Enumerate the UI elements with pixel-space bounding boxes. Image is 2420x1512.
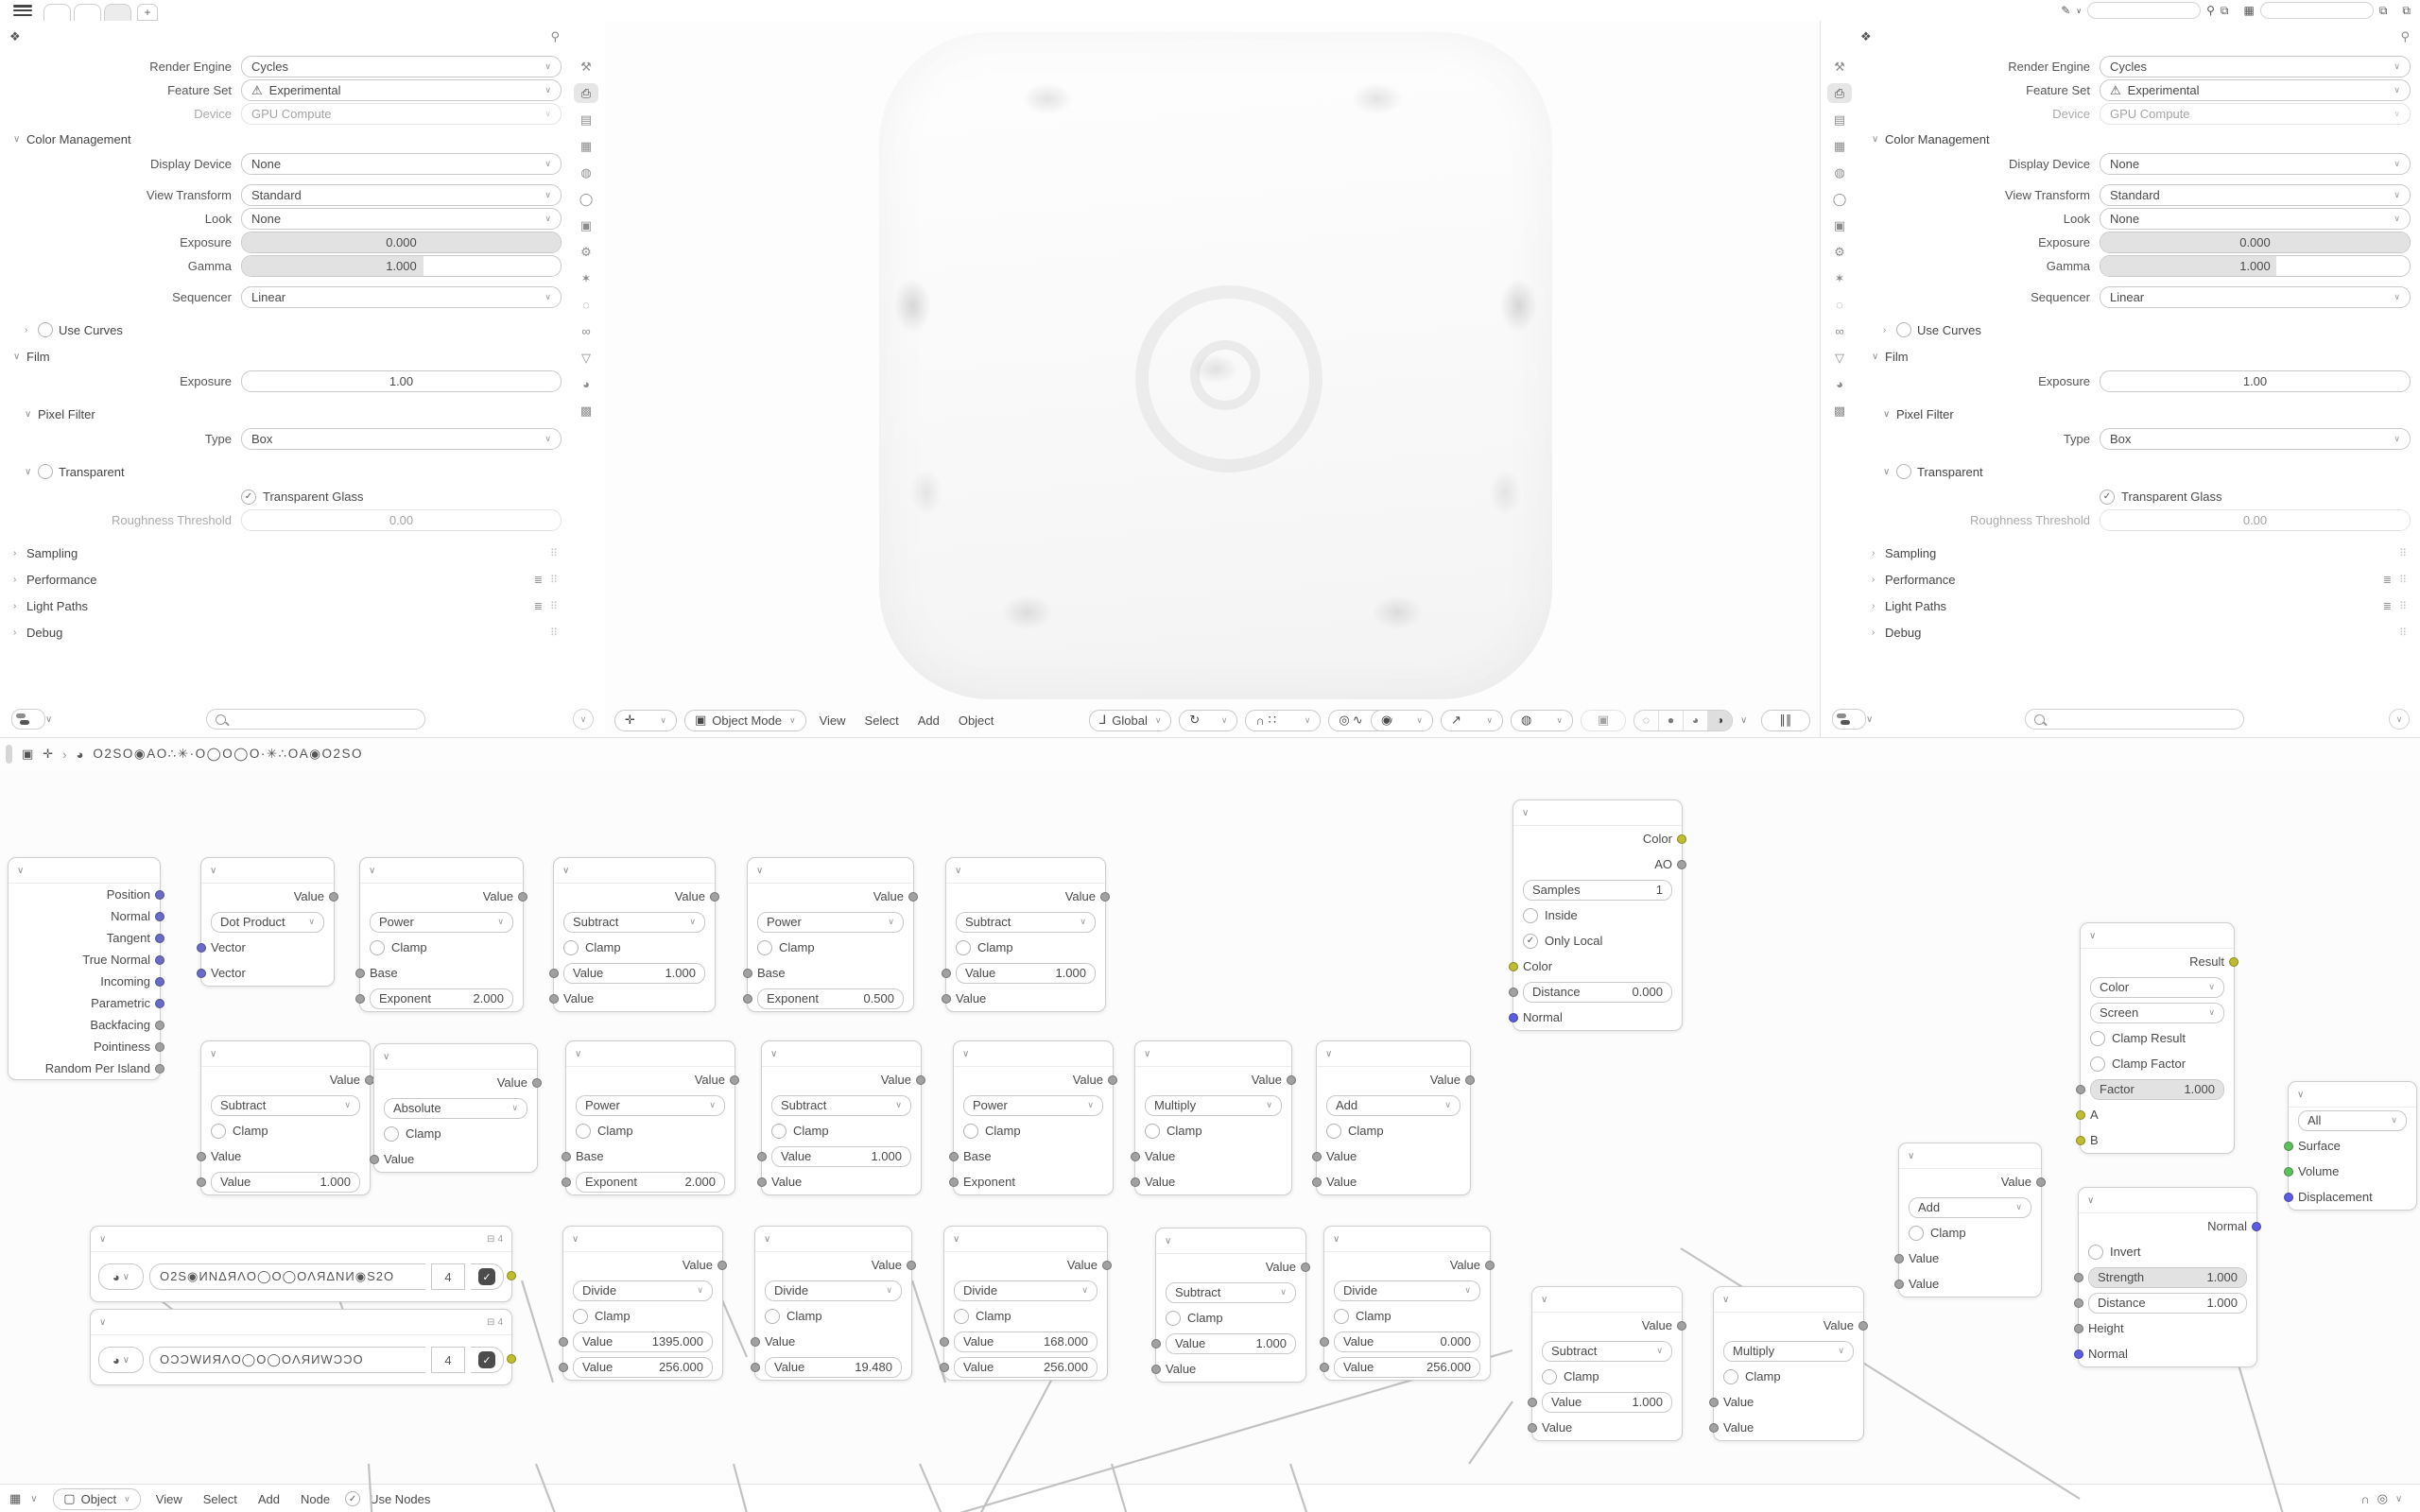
preset-list-icon[interactable]: ≣ (534, 600, 543, 612)
socket-value[interactable] (743, 994, 752, 1004)
overlays-dropdown[interactable]: ◍∨ (1511, 710, 1573, 731)
section-right-icons[interactable]: ⠿ (550, 627, 558, 639)
socket-color[interactable] (1509, 962, 1518, 971)
section-right-icons[interactable]: ≣⠿ (2383, 600, 2407, 612)
properties-tab-particles-icon[interactable]: ✶ (1827, 268, 1852, 288)
socket-value[interactable] (1100, 892, 1110, 902)
node-collapse-chevron[interactable]: ∨ (1541, 1295, 1547, 1305)
socket-color[interactable] (1677, 834, 1686, 844)
node-collapse-chevron[interactable]: ∨ (1522, 808, 1529, 818)
device-dropdown[interactable]: GPU Compute∨ (241, 103, 562, 125)
menu-object[interactable]: Object (953, 713, 1000, 728)
operation-dropdown[interactable]: Power∨ (757, 912, 904, 933)
new-view-layer-icon[interactable]: ⧉ (2402, 4, 2411, 18)
socket-vector[interactable] (197, 969, 206, 978)
node-node-group-1[interactable]: ∨⊟4◕∨O2S◉ИNΔЯΛO◯O◯OΛЯΔNИ◉S2O4✓ (90, 1226, 512, 1302)
node-collapse-chevron[interactable]: ∨ (575, 1049, 581, 1059)
drag-grip-icon[interactable]: ⠿ (550, 627, 558, 639)
socket-vector[interactable] (155, 934, 164, 943)
node-math-multiply-1[interactable]: ∨ValueMultiply∨ClampValueValue (1134, 1040, 1292, 1195)
properties-tab-world-icon[interactable]: ◯ (574, 189, 598, 209)
operation-dropdown[interactable]: Subtract∨ (563, 912, 705, 933)
node-collapse-chevron[interactable]: ∨ (562, 866, 569, 876)
value-value-field[interactable]: Value1.000 (771, 1146, 911, 1167)
workspace-tab-3[interactable] (104, 4, 131, 22)
node-math-subtract-2[interactable]: ∨ValueSubtract∨ClampValue1.000Value (945, 857, 1106, 1012)
value-value-field[interactable]: Value1.000 (956, 963, 1096, 984)
node-collapse-chevron[interactable]: ∨ (210, 1049, 216, 1059)
socket-value[interactable] (949, 1177, 959, 1187)
properties-tab-output-icon[interactable]: ▤ (1827, 110, 1852, 129)
socket-value[interactable] (730, 1075, 739, 1085)
socket-value[interactable] (1465, 1075, 1475, 1085)
socket-normal[interactable] (2074, 1349, 2083, 1359)
clamp-checkbox[interactable] (1166, 1311, 1181, 1326)
socket-vector[interactable] (155, 912, 164, 921)
transform-orientation-dropdown[interactable]: ⅃Global∨ (1089, 710, 1171, 731)
socket-value[interactable] (2074, 1273, 2083, 1282)
drag-grip-icon[interactable]: ⠿ (2399, 627, 2407, 639)
use-curves-checkbox[interactable] (1896, 322, 1911, 337)
header-grip[interactable] (6, 745, 12, 764)
node-collapse-chevron[interactable]: ∨ (1908, 1151, 1914, 1161)
shading-solid-icon[interactable]: ● (1658, 711, 1683, 730)
xray-toggle[interactable]: ▣ (1581, 710, 1626, 731)
operation-dropdown[interactable]: Divide∨ (765, 1280, 902, 1301)
node-collapse-chevron[interactable]: ∨ (17, 866, 24, 876)
socket-value[interactable] (155, 1064, 164, 1074)
value-value-field[interactable]: Value19.480 (765, 1357, 902, 1378)
film-exposure-field[interactable]: 1.00 (241, 370, 562, 392)
chevron-down-icon[interactable]: ∨ (2395, 1494, 2409, 1504)
properties-tab-tool-icon[interactable]: ⚒ (574, 57, 598, 77)
socket-normal[interactable] (2252, 1222, 2261, 1231)
pixel-filter-type-dropdown[interactable]: Box∨ (2100, 428, 2411, 450)
node-math-subtract-4[interactable]: ∨ValueSubtract∨ClampValue1.000Value (761, 1040, 922, 1195)
gamma-slider[interactable]: 1.000 (241, 255, 562, 277)
section-use-curves[interactable]: ›Use Curves (1858, 317, 2416, 343)
options-button[interactable]: ∨ (2389, 709, 2410, 730)
node-collapse-chevron[interactable]: ∨ (2297, 1090, 2304, 1100)
shader-context-dropdown[interactable]: ▢Object∨ (53, 1488, 140, 1510)
clamp-checkbox[interactable] (384, 1126, 399, 1142)
socket-value[interactable] (1131, 1152, 1140, 1161)
socket-value[interactable] (1528, 1398, 1537, 1407)
copy-icon[interactable]: ⧉ (2221, 4, 2229, 18)
operation-dropdown[interactable]: Add∨ (1326, 1095, 1461, 1116)
section-light-paths[interactable]: ›Light Paths≣⠿ (1858, 593, 2416, 619)
toggle-columns-icon[interactable] (11, 709, 45, 730)
invert-checkbox[interactable] (2088, 1245, 2103, 1260)
section-right-icons[interactable]: ⠿ (2399, 627, 2407, 639)
device-dropdown[interactable]: GPU Compute∨ (2100, 103, 2411, 125)
section-pixel-filter[interactable]: ∨Pixel Filter (0, 401, 567, 427)
section-transparent[interactable]: ∨Transparent (0, 458, 567, 485)
clamp-checkbox[interactable] (1145, 1124, 1160, 1139)
film-exposure-field[interactable]: 1.00 (2100, 370, 2411, 392)
socket-value[interactable] (916, 1075, 925, 1085)
copy-icon[interactable]: ⧉ (2379, 4, 2388, 18)
socket-vector[interactable] (155, 955, 164, 965)
operation-dropdown[interactable]: Power∨ (370, 912, 513, 933)
pause-render-button[interactable]: ∥∥ (1761, 710, 1810, 731)
properties-tab-particles-icon[interactable]: ✶ (574, 268, 598, 288)
mode-dropdown[interactable]: ▣Object Mode∨ (684, 710, 806, 731)
operation-dropdown[interactable]: Screen∨ (2090, 1003, 2224, 1023)
socket-value[interactable] (710, 892, 719, 902)
section-right-icons[interactable]: ≣⠿ (534, 574, 558, 586)
display-device-dropdown[interactable]: None∨ (241, 153, 562, 175)
drag-grip-icon[interactable]: ⠿ (550, 547, 558, 559)
socket-color[interactable] (507, 1271, 516, 1280)
menu-select[interactable]: Select (859, 713, 905, 728)
socket-value[interactable] (549, 994, 559, 1004)
drag-grip-icon[interactable]: ⠿ (2399, 600, 2407, 612)
socket-value[interactable] (1485, 1261, 1495, 1270)
operation-dropdown[interactable]: Subtract∨ (211, 1095, 360, 1116)
menu-add[interactable]: Add (912, 713, 945, 728)
section-film[interactable]: ∨Film (0, 343, 567, 369)
properties-editor-icon[interactable]: ❖ (9, 29, 21, 44)
node-collapse-chevron[interactable]: ∨ (1722, 1295, 1729, 1305)
properties-tab-modifiers-icon[interactable]: ⚙ (574, 242, 598, 262)
options-button[interactable]: ∨ (573, 709, 594, 730)
section-debug[interactable]: ›Debug⠿ (0, 619, 567, 645)
properties-tab-tool-icon[interactable]: ⚒ (1827, 57, 1852, 77)
socket-value[interactable] (1528, 1423, 1537, 1433)
socket-value[interactable] (1312, 1177, 1322, 1187)
preset-list-icon[interactable]: ≣ (2383, 574, 2392, 586)
properties-tab-texture-icon[interactable]: ▩ (574, 401, 598, 421)
socket-value[interactable] (549, 969, 559, 978)
socket-value[interactable] (942, 994, 951, 1004)
clamp-checkbox[interactable] (1334, 1309, 1349, 1324)
drag-grip-icon[interactable]: ⠿ (2399, 574, 2407, 586)
clamp-checkbox[interactable] (563, 940, 579, 955)
properties-editor-icon[interactable]: ❖ (1860, 29, 1872, 44)
clamp-checkbox[interactable] (771, 1124, 786, 1139)
socket-shader[interactable] (2284, 1167, 2293, 1177)
properties-tab-constraints-icon[interactable]: ∞ (1827, 321, 1852, 341)
socket-value[interactable] (1677, 1321, 1686, 1331)
magnet-icon[interactable]: ∩ (2360, 1492, 2369, 1506)
factor-value-field[interactable]: Factor1.000 (2090, 1079, 2224, 1100)
operation-dropdown[interactable]: Absolute∨ (384, 1098, 527, 1119)
node-bump[interactable]: ∨NormalInvertStrength1.000Distance1.000H… (2078, 1187, 2257, 1367)
socket-value[interactable] (757, 1177, 767, 1187)
fake-user-shield-button[interactable]: ✓ (471, 1347, 504, 1373)
properties-tab-modifiers-icon[interactable]: ⚙ (1827, 242, 1852, 262)
section-sampling[interactable]: ›Sampling⠿ (0, 540, 567, 566)
operation-dropdown[interactable]: Subtract∨ (956, 912, 1096, 933)
node-math-power-3[interactable]: ∨ValuePower∨ClampBaseExponent2.000 (565, 1040, 735, 1195)
menu-select[interactable]: Select (198, 1492, 243, 1506)
roughness-threshold-field[interactable]: 0.00 (241, 509, 562, 531)
socket-value[interactable] (1320, 1337, 1329, 1347)
node-collapse-chevron[interactable]: ∨ (764, 1234, 770, 1245)
clamp-checkbox[interactable] (1723, 1369, 1738, 1384)
socket-value[interactable] (757, 1152, 767, 1161)
select-box-icon[interactable]: ▣ (22, 747, 33, 762)
value-value-field[interactable]: Value1.000 (1542, 1392, 1672, 1413)
clamp-checkbox[interactable] (1326, 1124, 1341, 1139)
node-math-absolute[interactable]: ∨ValueAbsolute∨ClampValue (373, 1043, 538, 1173)
clamp-factor-checkbox[interactable] (2090, 1057, 2105, 1072)
chevron-down-icon[interactable]: ∨ (2076, 7, 2082, 15)
socket-value[interactable] (1709, 1398, 1719, 1407)
socket-value[interactable] (562, 1177, 571, 1187)
socket-value[interactable] (940, 1363, 949, 1372)
value-value-field[interactable]: Value1.000 (1166, 1333, 1296, 1354)
node-collapse-chevron[interactable]: ∨ (1165, 1236, 1171, 1246)
node-math-subtract-5[interactable]: ∨ValueSubtract∨ClampValue1.000Value (1155, 1228, 1306, 1383)
section-color-management[interactable]: ∨Color Management (0, 126, 567, 152)
node-math-power-1[interactable]: ∨ValuePower∨ClampBaseExponent2.000 (359, 857, 524, 1012)
datablock-name-field[interactable]: O2S◉ИNΔЯΛO◯O◯OΛЯΔNИ◉S2O (149, 1263, 425, 1290)
exponent-value-field[interactable]: Exponent0.500 (757, 988, 904, 1009)
node-math-subtract-3[interactable]: ∨ValueSubtract∨ClampValueValue1.000 (200, 1040, 371, 1195)
clamp-checkbox[interactable] (956, 940, 971, 955)
properties-tab-scene-icon[interactable]: ◍ (1827, 163, 1852, 182)
editor-type-button[interactable]: ✛∨ (614, 710, 677, 731)
properties-tab-material-icon[interactable]: ◕ (574, 374, 598, 394)
socket-value[interactable] (355, 994, 365, 1004)
properties-tab-view-layer-icon[interactable]: ▦ (574, 136, 598, 156)
shading-rendered-icon[interactable]: ◑ (1707, 711, 1732, 730)
node-math-subtract-6[interactable]: ∨ValueSubtract∨ClampValue1.000Value (1531, 1286, 1683, 1441)
clamp-checkbox[interactable] (765, 1309, 780, 1324)
properties-tab-constraints-icon[interactable]: ∞ (574, 321, 598, 341)
section-pixel-filter[interactable]: ∨Pixel Filter (1858, 401, 2416, 427)
shading-wireframe-icon[interactable]: ◌ (1634, 711, 1658, 730)
exponent-value-field[interactable]: Exponent2.000 (576, 1172, 725, 1193)
value-value-field[interactable]: Value168.000 (954, 1332, 1098, 1352)
socket-value[interactable] (2076, 1085, 2085, 1094)
strength-value-field[interactable]: Strength1.000 (2088, 1267, 2247, 1288)
clamp-checkbox[interactable] (576, 1124, 591, 1139)
snap-target-dropdown[interactable]: ↻∨ (1179, 710, 1237, 731)
node-math-add-2[interactable]: ∨ValueAdd∨ClampValueValue (1898, 1143, 2042, 1297)
node-collapse-chevron[interactable]: ∨ (1144, 1049, 1150, 1059)
socket-value[interactable] (1151, 1339, 1161, 1349)
socket-vector[interactable] (155, 999, 164, 1008)
properties-tab-material-icon[interactable]: ◕ (1827, 374, 1852, 394)
distance-value-field[interactable]: Distance0.000 (1523, 982, 1672, 1003)
distance-value-field[interactable]: Distance1.000 (2088, 1293, 2247, 1314)
section-color-management[interactable]: ∨Color Management (1858, 126, 2416, 152)
menu-view[interactable]: View (150, 1492, 188, 1506)
node-node-group-2[interactable]: ∨⊟4◕∨OƆƆWИЯΛO◯O◯OΛЯИWƆƆO4✓ (90, 1309, 512, 1385)
socket-normal[interactable] (1509, 1013, 1518, 1022)
view-transform-dropdown[interactable]: Standard∨ (2100, 184, 2411, 206)
socket-value[interactable] (907, 1261, 916, 1270)
properties-tab-output-icon[interactable]: ▤ (574, 110, 598, 129)
socket-value[interactable] (717, 1261, 727, 1270)
properties-tab-object-icon[interactable]: ▣ (574, 215, 598, 235)
node-collapse-chevron[interactable]: ∨ (383, 1052, 389, 1062)
clamp-checkbox[interactable] (757, 940, 772, 955)
hamburger-menu-icon[interactable] (13, 5, 32, 16)
pin-icon[interactable]: ⚲ (2206, 4, 2215, 17)
node-math-divide-4[interactable]: ∨ValueDivide∨ClampValue0.000Value256.000 (1323, 1226, 1491, 1381)
socket-value[interactable] (155, 1021, 164, 1030)
node-collapse-chevron[interactable]: ∨ (572, 1234, 579, 1245)
node-collapse-chevron[interactable]: ∨ (962, 1049, 969, 1059)
feature-set-dropdown[interactable]: ⚠Experimental∨ (241, 79, 562, 101)
properties-search-input[interactable] (2025, 709, 2244, 730)
section-debug[interactable]: ›Debug⠿ (1858, 619, 2416, 645)
exposure-slider[interactable]: 0.000 (2100, 232, 2411, 253)
operation-dropdown[interactable]: All∨ (2298, 1110, 2407, 1131)
socket-value[interactable] (942, 969, 951, 978)
socket-value[interactable] (2074, 1324, 2083, 1333)
chevron-down-icon[interactable]: ∨ (45, 714, 59, 725)
operation-dropdown[interactable]: Divide∨ (1334, 1280, 1480, 1301)
socket-color[interactable] (2229, 957, 2238, 967)
render-engine-dropdown[interactable]: Cycles∨ (2100, 56, 2411, 77)
preset-list-icon[interactable]: ≣ (534, 574, 543, 586)
look-dropdown[interactable]: None∨ (241, 208, 562, 230)
socket-value[interactable] (355, 969, 365, 978)
socket-value[interactable] (532, 1078, 542, 1088)
toggle-columns-icon[interactable] (1832, 709, 1866, 730)
properties-tab-object-icon[interactable]: ▣ (1827, 215, 1852, 235)
node-collapse-chevron[interactable]: ∨ (1325, 1049, 1332, 1059)
clamp-checkbox[interactable] (370, 940, 385, 955)
node-collapse-chevron[interactable]: ∨ (2087, 1195, 2094, 1206)
pin-icon[interactable]: ⚲ (550, 29, 560, 44)
menu-node[interactable]: Node (295, 1492, 336, 1506)
node-math-divide-2[interactable]: ∨ValueDivide∨ClampValueValue19.480 (754, 1226, 912, 1381)
drag-grip-icon[interactable]: ⠿ (2399, 547, 2407, 559)
only-local-checkbox[interactable]: ✓ (1523, 934, 1538, 949)
socket-value[interactable] (2074, 1298, 2083, 1308)
move-tool-icon[interactable]: ✛ (43, 747, 53, 762)
socket-value[interactable] (1312, 1152, 1322, 1161)
sequencer-dropdown[interactable]: Linear∨ (241, 286, 562, 308)
preset-list-icon[interactable]: ≣ (2383, 600, 2392, 612)
socket-value[interactable] (1509, 988, 1518, 997)
node-math-power-2[interactable]: ∨ValuePower∨ClampBaseExponent0.500 (747, 857, 914, 1012)
chevron-down-icon[interactable]: ∨ (1866, 714, 1879, 725)
section-performance[interactable]: ›Performance≣⠿ (0, 566, 567, 593)
node-math-add-1[interactable]: ∨ValueAdd∨ClampValueValue (1316, 1040, 1471, 1195)
section-right-icons[interactable]: ⠿ (2399, 547, 2407, 559)
node-collapse-chevron[interactable]: ∨ (756, 866, 763, 876)
socket-value[interactable] (518, 892, 527, 902)
use-nodes-checkbox[interactable]: ✓ (345, 1491, 360, 1506)
section-film[interactable]: ∨Film (1858, 343, 2416, 369)
socket-normal[interactable] (2284, 1193, 2293, 1202)
samples-value-field[interactable]: Samples1 (1523, 880, 1672, 901)
clamp-checkbox[interactable] (1909, 1226, 1924, 1241)
node-ambient-occlusion[interactable]: ∨ColorAOSamples1Inside✓Only LocalColorDi… (1512, 799, 1683, 1031)
menu-add[interactable]: Add (252, 1492, 285, 1506)
render-engine-dropdown[interactable]: Cycles∨ (241, 56, 562, 77)
gizmo-dropdown[interactable]: ↗∨ (1441, 710, 1503, 731)
socket-value[interactable] (1108, 1075, 1117, 1085)
workspace-tab-2[interactable] (74, 4, 101, 22)
pin-icon[interactable]: ⚲ (2400, 29, 2410, 44)
roughness-threshold-field[interactable]: 0.00 (2100, 509, 2411, 531)
chevron-down-icon[interactable]: ∨ (30, 1494, 43, 1504)
node-collapse-chevron[interactable]: ∨ (210, 866, 216, 876)
operation-dropdown[interactable]: Subtract∨ (771, 1095, 911, 1116)
properties-tab-object-data-icon[interactable]: ▽ (1827, 348, 1852, 368)
section-performance[interactable]: ›Performance≣⠿ (1858, 566, 2416, 593)
socket-value[interactable] (1131, 1177, 1140, 1187)
exponent-value-field[interactable]: Exponent2.000 (370, 988, 513, 1009)
socket-value[interactable] (562, 1152, 571, 1161)
material-browse-dropdown[interactable]: ◕∨ (98, 1263, 144, 1290)
scene-name-field[interactable] (2087, 2, 2201, 19)
socket-value[interactable] (908, 892, 918, 902)
transparent-glass-checkbox[interactable]: ✓ (2100, 490, 2115, 505)
section-sampling[interactable]: ›Sampling⠿ (1858, 540, 2416, 566)
operation-dropdown[interactable]: Color∨ (2090, 977, 2224, 998)
socket-color[interactable] (2076, 1136, 2085, 1145)
properties-tab-render-icon[interactable]: ⎙ (1827, 83, 1852, 103)
socket-value[interactable] (1858, 1321, 1868, 1331)
inside-checkbox[interactable] (1523, 908, 1538, 923)
socket-value[interactable] (1677, 860, 1686, 869)
properties-tab-object-data-icon[interactable]: ▽ (574, 348, 598, 368)
node-math-multiply-2[interactable]: ∨ValueMultiply∨ClampValueValue (1713, 1286, 1864, 1441)
material-browse-dropdown[interactable]: ◕∨ (98, 1347, 144, 1373)
section-light-paths[interactable]: ›Light Paths≣⠿ (0, 593, 567, 619)
properties-tab-scene-icon[interactable]: ◍ (574, 163, 598, 182)
shading-options-chevron[interactable]: ∨ (1740, 715, 1754, 726)
value-value-field[interactable]: Value256.000 (573, 1357, 713, 1378)
section-right-icons[interactable]: ⠿ (550, 547, 558, 559)
operation-dropdown[interactable]: Divide∨ (954, 1280, 1098, 1301)
socket-value[interactable] (949, 1152, 959, 1161)
operation-dropdown[interactable]: Subtract∨ (1166, 1282, 1296, 1303)
operation-dropdown[interactable]: Multiply∨ (1723, 1341, 1854, 1362)
use-curves-checkbox[interactable] (38, 322, 53, 337)
socket-vector[interactable] (155, 977, 164, 987)
properties-search-input[interactable] (206, 709, 425, 730)
pixel-filter-type-dropdown[interactable]: Box∨ (241, 428, 562, 450)
node-collapse-chevron[interactable]: ∨ (2089, 931, 2096, 941)
shader-node-editor[interactable]: ▣ ✛ › ◕ O2SO◉AO∴✳·O◯O◯O·✳∴OA◉O2SO ∨Posit… (0, 737, 2420, 1485)
socket-value[interactable] (559, 1363, 568, 1372)
value-value-field[interactable]: Value1395.000 (573, 1332, 713, 1352)
node-collapse-chevron[interactable]: ∨ (770, 1049, 777, 1059)
socket-vector[interactable] (197, 943, 206, 953)
properties-tab-physics-icon[interactable]: ◌ (1827, 295, 1852, 315)
socket-color[interactable] (507, 1354, 516, 1364)
properties-tab-view-layer-icon[interactable]: ▦ (1827, 136, 1852, 156)
section-transparent[interactable]: ∨Transparent (1858, 458, 2416, 485)
3d-viewport[interactable]: ✛∨ ▣Object Mode∨ View Select Add Object … (605, 21, 1820, 737)
operation-dropdown[interactable]: Subtract∨ (1542, 1341, 1672, 1362)
socket-value[interactable] (940, 1337, 949, 1347)
transparent-checkbox[interactable] (38, 464, 53, 479)
value-value-field[interactable]: Value1.000 (563, 963, 705, 984)
exposure-slider[interactable]: 0.000 (241, 232, 562, 253)
socket-value[interactable] (1287, 1075, 1296, 1085)
socket-value[interactable] (743, 969, 752, 978)
operation-dropdown[interactable]: Multiply∨ (1145, 1095, 1282, 1116)
operation-dropdown[interactable]: Power∨ (963, 1095, 1103, 1116)
node-geometry[interactable]: ∨PositionNormalTangentTrue NormalIncomin… (8, 857, 161, 1080)
socket-value[interactable] (1709, 1423, 1719, 1433)
user-count-button[interactable]: 4 (431, 1263, 465, 1290)
node-mix-color[interactable]: ∨ResultColor∨Screen∨Clamp ResultClamp Fa… (2080, 922, 2235, 1154)
workspace-tab-1[interactable] (43, 4, 71, 22)
socket-value[interactable] (370, 1155, 379, 1164)
